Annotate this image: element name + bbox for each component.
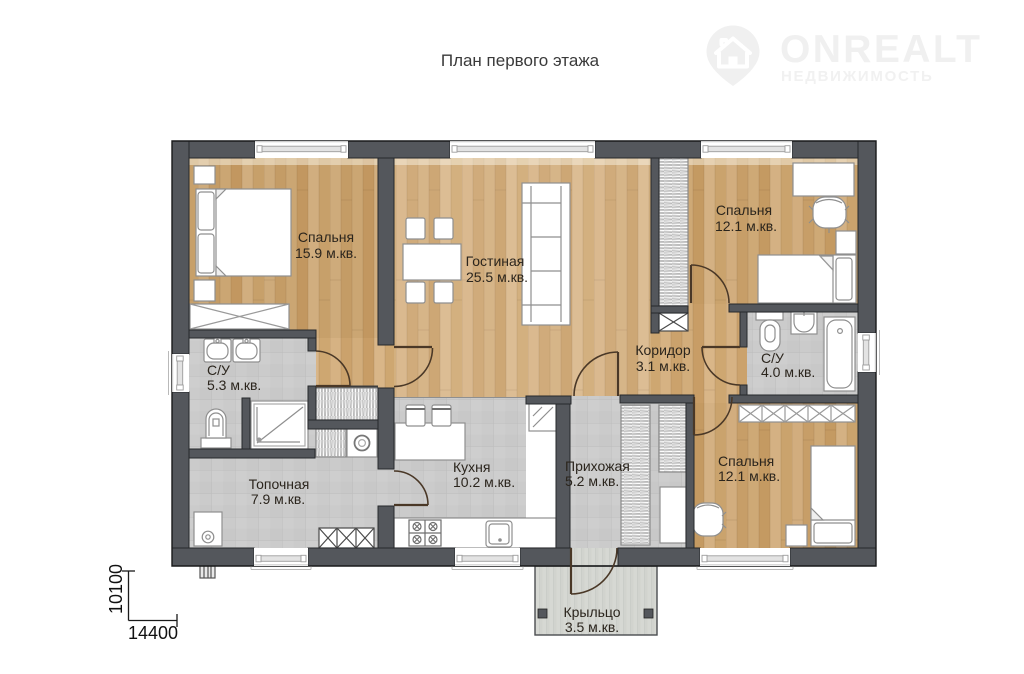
svg-text:Кухня: Кухня xyxy=(453,459,490,475)
svg-text:Топочная: Топочная xyxy=(249,476,310,492)
svg-text:10100: 10100 xyxy=(106,564,126,614)
svg-text:14400: 14400 xyxy=(128,623,178,643)
svg-text:Гостиная: Гостиная xyxy=(466,253,525,269)
svg-text:Спальня: Спальня xyxy=(716,202,772,218)
svg-text:12.1 м.кв.: 12.1 м.кв. xyxy=(718,468,780,484)
svg-text:Спальня: Спальня xyxy=(718,453,774,469)
svg-text:С/У: С/У xyxy=(207,362,230,378)
svg-text:10.2 м.кв.: 10.2 м.кв. xyxy=(453,474,515,490)
svg-text:Спальня: Спальня xyxy=(298,229,354,245)
svg-text:Прихожая: Прихожая xyxy=(565,458,630,474)
svg-text:Крыльцо: Крыльцо xyxy=(563,604,620,620)
svg-text:5.3 м.кв.: 5.3 м.кв. xyxy=(207,377,261,393)
svg-text:25.5 м.кв.: 25.5 м.кв. xyxy=(466,269,528,285)
svg-text:3.1 м.кв.: 3.1 м.кв. xyxy=(636,358,690,374)
svg-text:7.9 м.кв.: 7.9 м.кв. xyxy=(251,491,305,507)
svg-text:НЕДВИЖИМОСТЬ: НЕДВИЖИМОСТЬ xyxy=(781,68,933,85)
svg-text:ONREALT: ONREALT xyxy=(780,28,982,71)
svg-text:5.2 м.кв.: 5.2 м.кв. xyxy=(565,473,619,489)
svg-text:3.5 м.кв.: 3.5 м.кв. xyxy=(565,619,619,635)
svg-text:12.1 м.кв.: 12.1 м.кв. xyxy=(715,218,777,234)
svg-text:План первого этажа: План первого этажа xyxy=(441,51,600,70)
svg-text:Коридор: Коридор xyxy=(635,342,691,358)
svg-text:4.0 м.кв.: 4.0 м.кв. xyxy=(761,364,815,380)
svg-text:15.9 м.кв.: 15.9 м.кв. xyxy=(295,245,357,261)
